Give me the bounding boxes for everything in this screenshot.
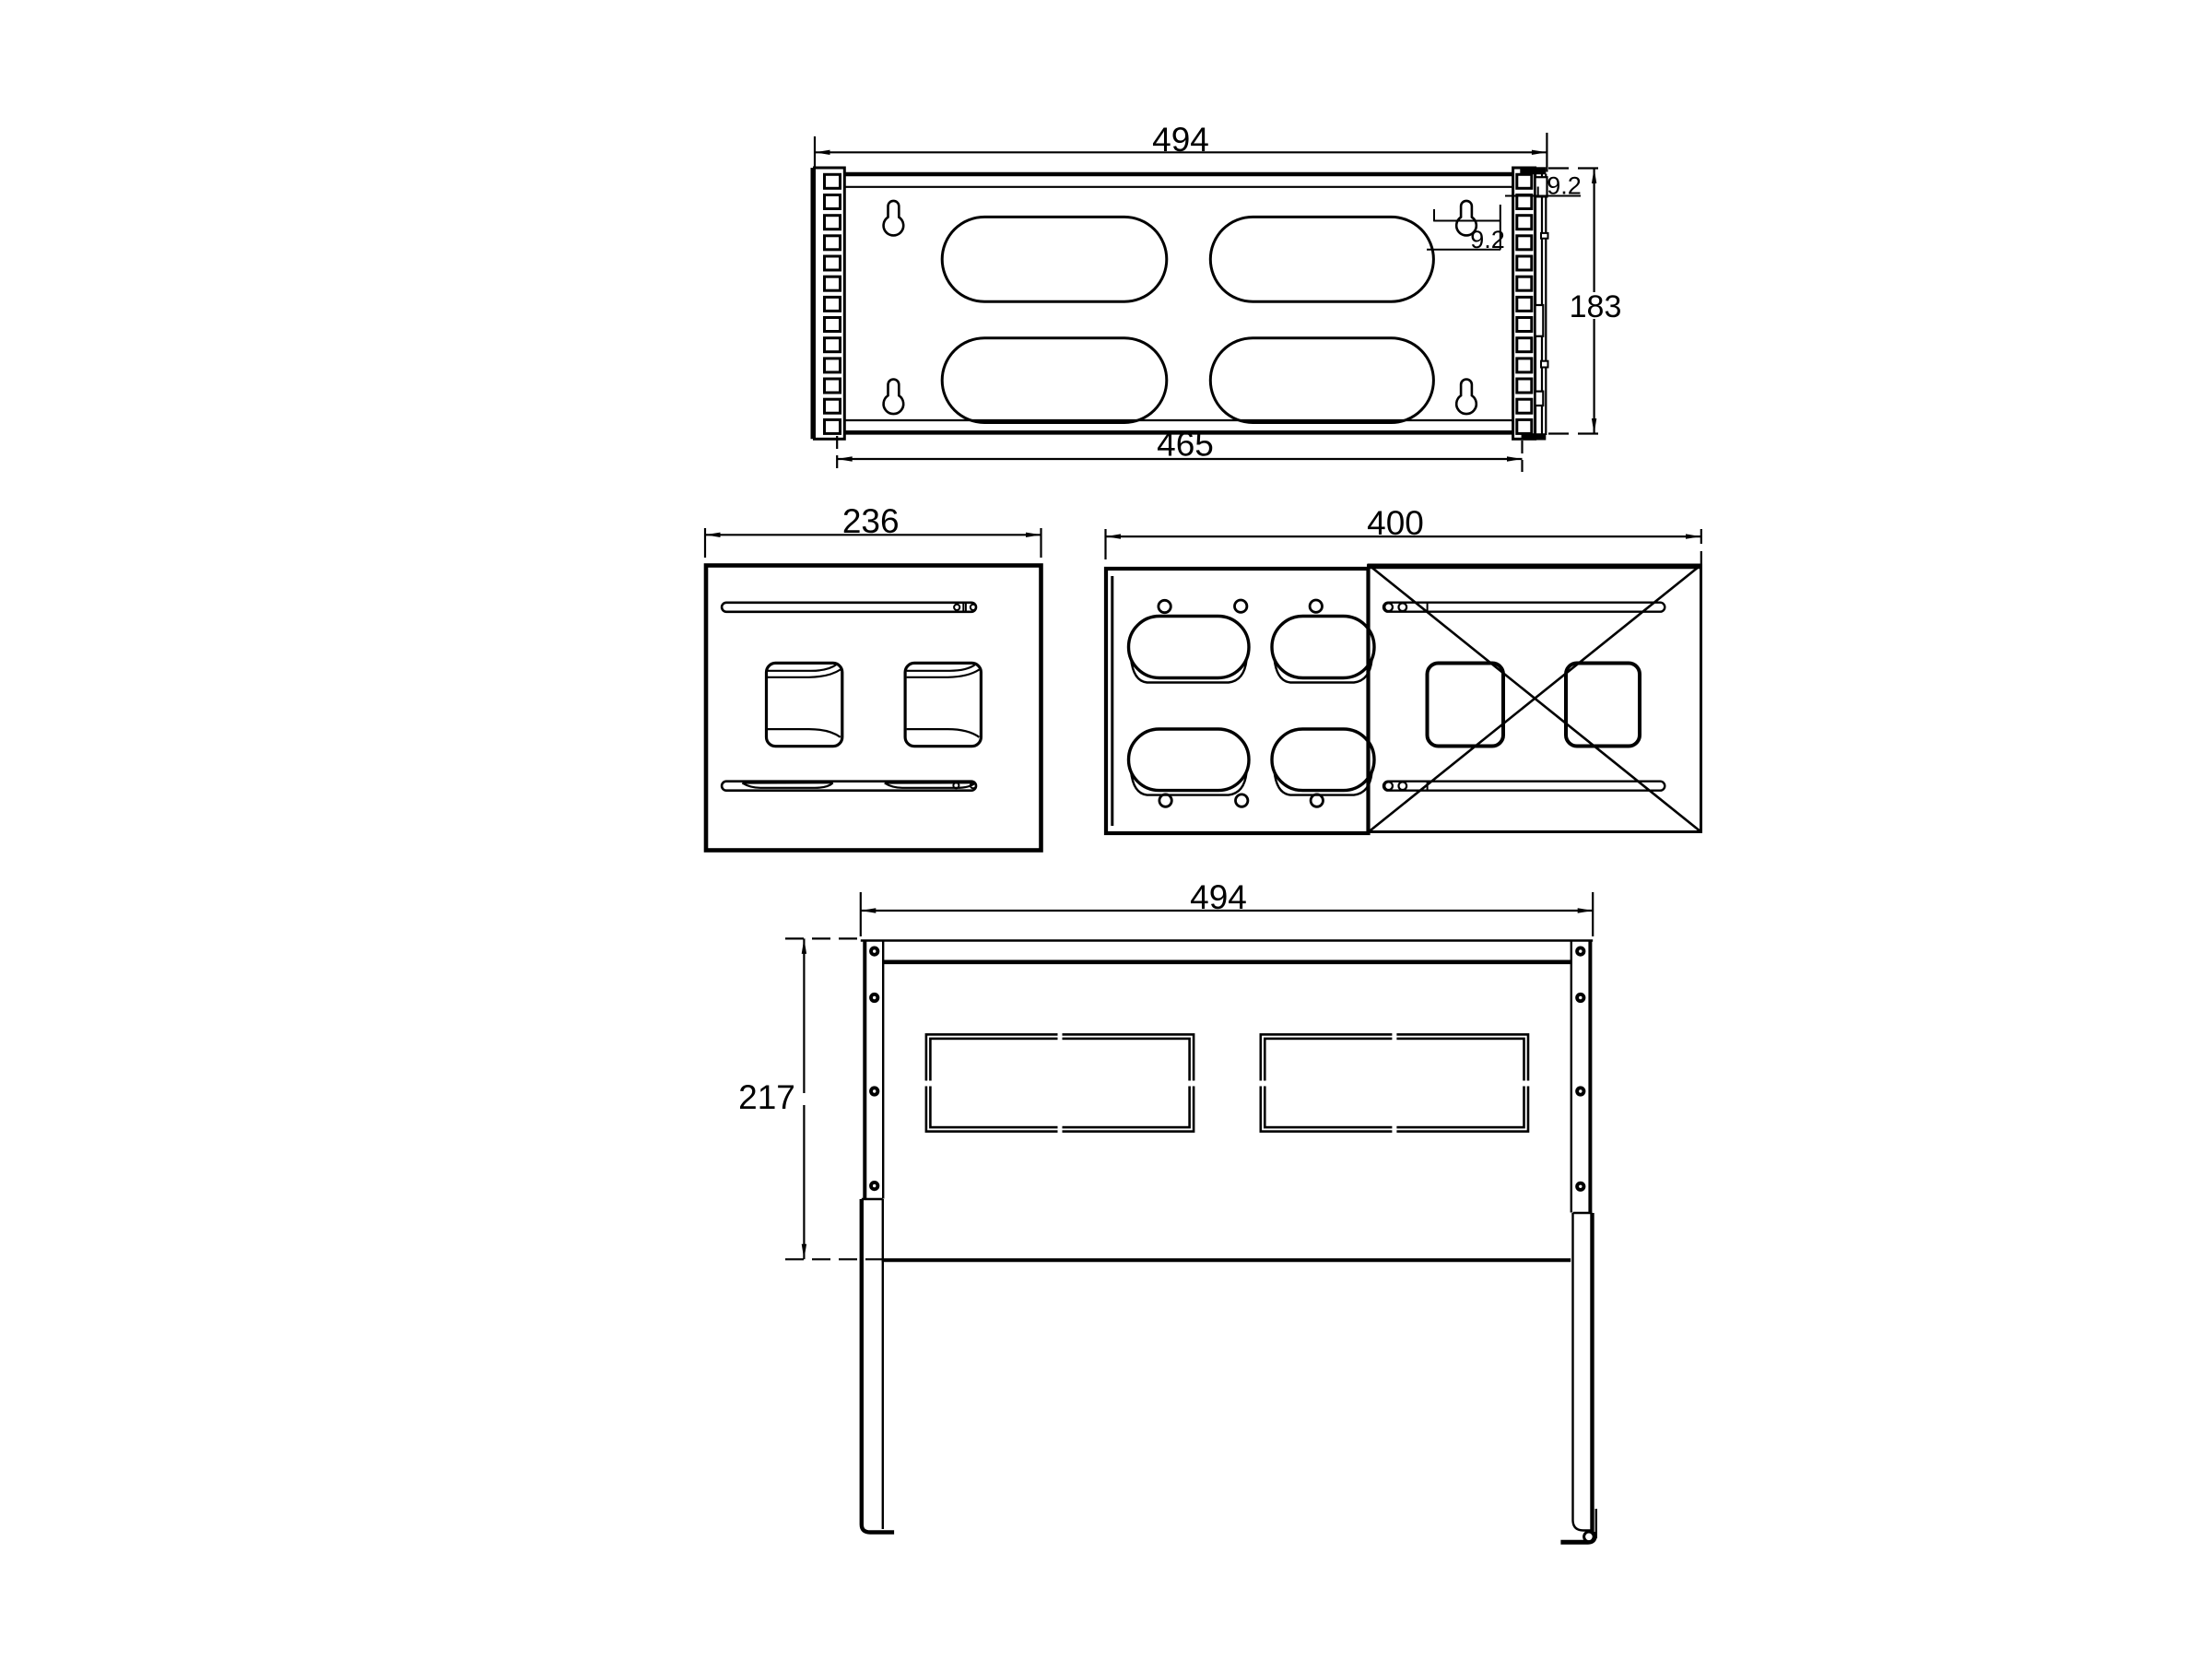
svg-text:494: 494 bbox=[1190, 878, 1247, 916]
svg-text:465: 465 bbox=[1157, 426, 1214, 464]
svg-text:494: 494 bbox=[1152, 121, 1209, 159]
svg-text:9.2: 9.2 bbox=[1547, 172, 1582, 200]
svg-text:400: 400 bbox=[1367, 504, 1424, 542]
svg-text:9.2: 9.2 bbox=[1470, 226, 1505, 253]
svg-text:236: 236 bbox=[842, 502, 900, 540]
svg-text:183: 183 bbox=[1570, 289, 1622, 324]
svg-text:217: 217 bbox=[738, 1078, 795, 1116]
